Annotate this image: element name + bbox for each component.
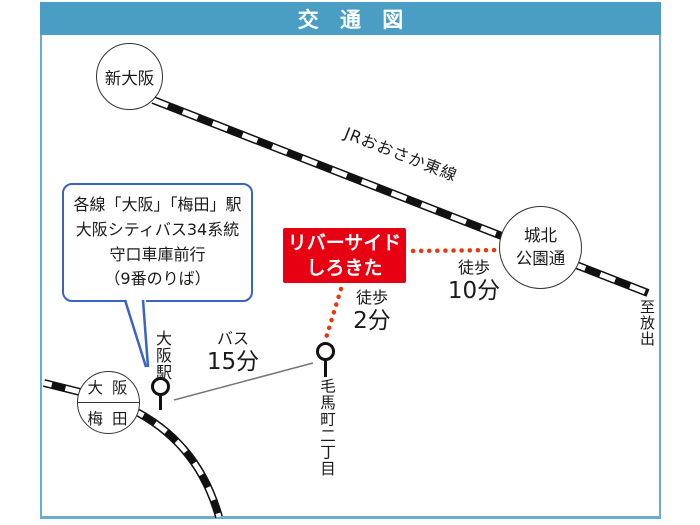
info-box-callout-pointer [0, 0, 700, 525]
